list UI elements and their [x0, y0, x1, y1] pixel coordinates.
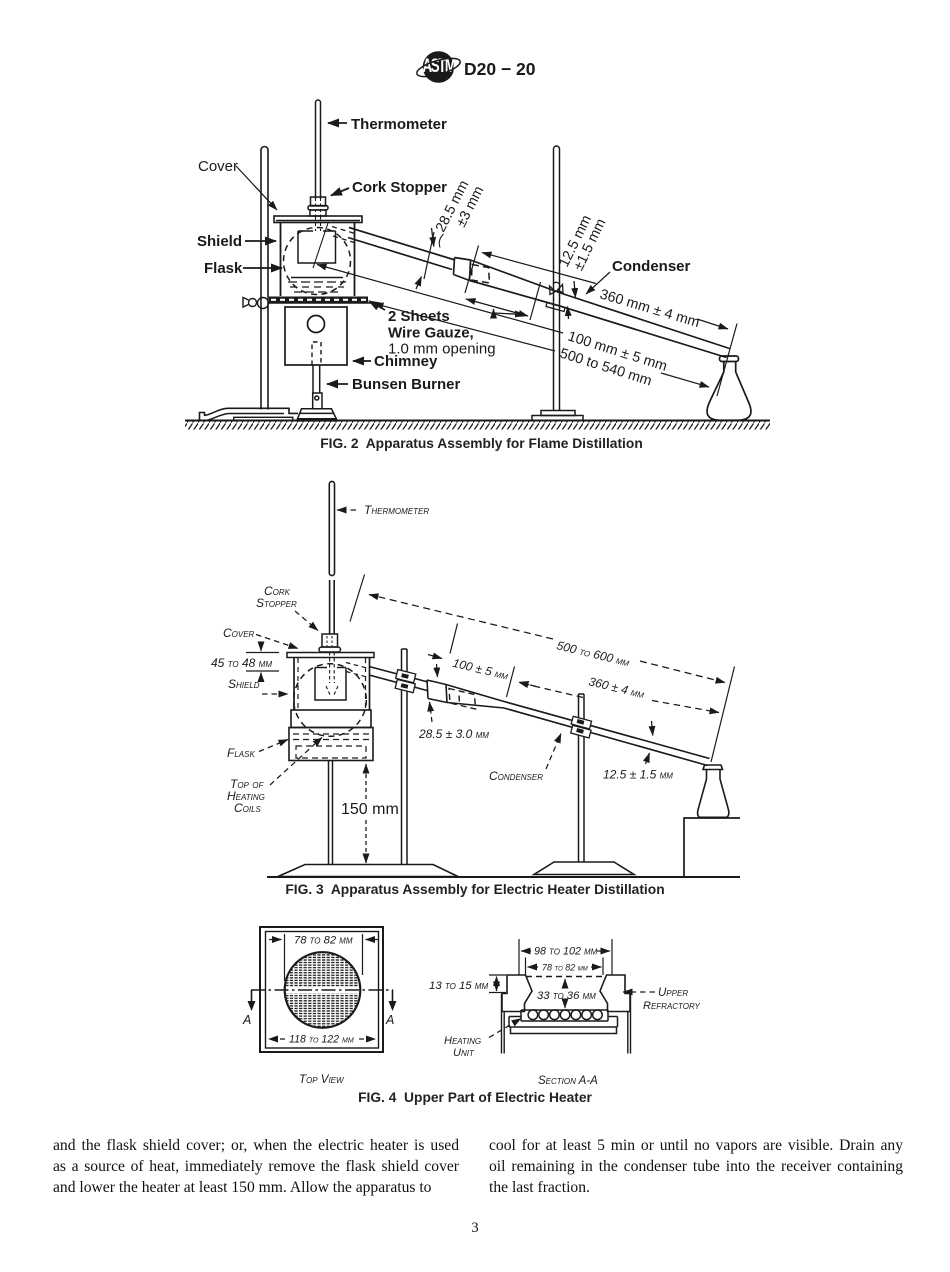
svg-text:100 ± 5 mm: 100 ± 5 mm: [451, 656, 510, 683]
svg-text:118 to 122 mm: 118 to 122 mm: [289, 1034, 354, 1046]
svg-text:Cover: Cover: [223, 626, 255, 640]
svg-text:78 to 82 mm: 78 to 82 mm: [542, 962, 588, 972]
svg-text:Top View: Top View: [299, 1074, 345, 1086]
svg-text:Upper: Upper: [658, 987, 688, 999]
svg-text:Shield: Shield: [197, 233, 242, 250]
svg-text:Coils: Coils: [234, 801, 262, 815]
svg-text:Section A-A: Section A-A: [538, 1075, 598, 1087]
svg-text:Wire Gauze,: Wire Gauze,: [388, 325, 474, 342]
svg-text:33 to 36 mm: 33 to 36 mm: [537, 990, 596, 1002]
svg-text:12.5 ± 1.5 mm: 12.5 ± 1.5 mm: [603, 768, 673, 782]
svg-text:150 mm: 150 mm: [341, 801, 399, 818]
svg-text:98 to 102 mm: 98 to 102 mm: [534, 946, 598, 958]
svg-text:Thermometer: Thermometer: [351, 116, 447, 133]
svg-text:Condenser: Condenser: [612, 258, 691, 275]
svg-text:Refractory: Refractory: [643, 1000, 701, 1012]
svg-text:Flask: Flask: [204, 260, 243, 277]
svg-text:Stopper: Stopper: [256, 596, 297, 610]
svg-text:360 mm ± 4 mm: 360 mm ± 4 mm: [598, 286, 701, 331]
svg-text:Thermometer: Thermometer: [364, 503, 429, 517]
svg-text:13 to 15 mm: 13 to 15 mm: [429, 980, 488, 992]
svg-text:Flask: Flask: [227, 746, 255, 760]
svg-text:Cover: Cover: [198, 158, 238, 175]
svg-text:360 ± 4 mm: 360 ± 4 mm: [587, 674, 646, 701]
svg-text:78 to 82 mm: 78 to 82 mm: [294, 935, 353, 947]
svg-text:Unit: Unit: [453, 1047, 475, 1059]
svg-text:Cork Stopper: Cork Stopper: [352, 179, 447, 196]
svg-text:500 to 600 mm: 500 to 600 mm: [555, 638, 631, 669]
svg-text:Shield: Shield: [228, 677, 260, 691]
svg-text:Heating: Heating: [444, 1035, 481, 1047]
svg-text:A: A: [385, 1013, 394, 1027]
svg-text:28.5 ± 3.0 mm: 28.5 ± 3.0 mm: [418, 727, 489, 741]
svg-text:45 to 48 mm: 45 to 48 mm: [211, 656, 272, 670]
svg-text:2 Sheets: 2 Sheets: [388, 308, 450, 325]
svg-text:A: A: [242, 1013, 251, 1027]
svg-text:Bunsen Burner: Bunsen Burner: [352, 376, 461, 393]
svg-text:Condenser: Condenser: [489, 769, 543, 783]
svg-text:Chimney: Chimney: [374, 353, 438, 370]
